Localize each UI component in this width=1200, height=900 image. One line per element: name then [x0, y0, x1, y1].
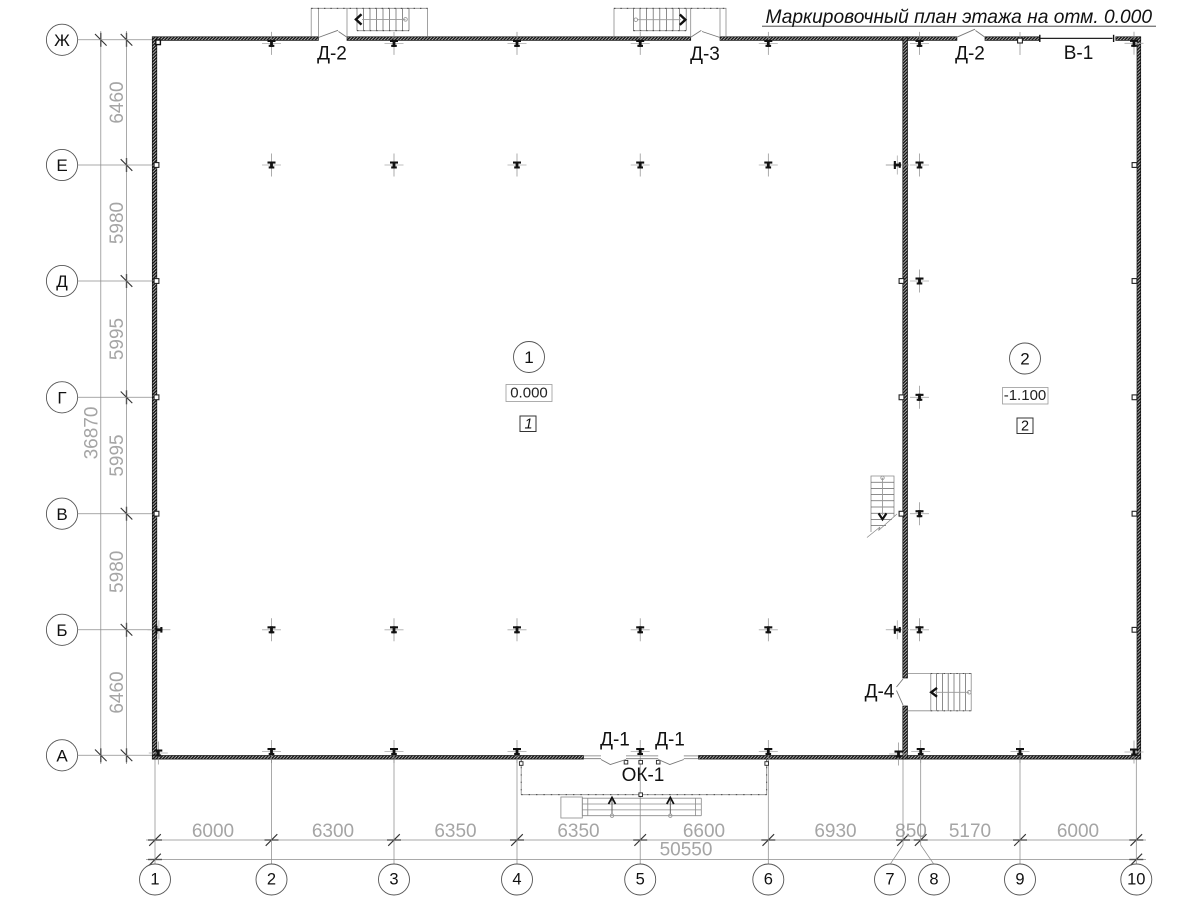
- svg-text:850: 850: [895, 821, 927, 842]
- svg-text:6350: 6350: [434, 821, 476, 842]
- svg-text:5980: 5980: [107, 551, 128, 593]
- svg-text:Д-2: Д-2: [955, 44, 985, 65]
- svg-text:-1.100: -1.100: [1004, 387, 1047, 404]
- svg-text:50550: 50550: [660, 840, 713, 861]
- svg-text:А: А: [56, 747, 68, 766]
- svg-text:1: 1: [524, 348, 533, 367]
- svg-text:1: 1: [524, 417, 532, 433]
- svg-text:5170: 5170: [949, 821, 991, 842]
- svg-text:0.000: 0.000: [510, 385, 548, 402]
- svg-text:2: 2: [1020, 349, 1029, 368]
- svg-text:7: 7: [885, 871, 894, 889]
- svg-text:6300: 6300: [312, 821, 354, 842]
- svg-text:4: 4: [512, 871, 521, 889]
- svg-text:Д: Д: [56, 272, 68, 291]
- svg-text:6000: 6000: [192, 821, 234, 842]
- svg-text:2: 2: [1021, 419, 1029, 435]
- svg-text:8: 8: [929, 871, 938, 889]
- svg-text:В-1: В-1: [1064, 43, 1094, 64]
- svg-text:2: 2: [267, 871, 276, 889]
- svg-text:Д-1: Д-1: [600, 730, 630, 751]
- svg-text:Д-4: Д-4: [865, 682, 895, 703]
- svg-text:6: 6: [764, 871, 773, 889]
- svg-text:В: В: [56, 505, 67, 524]
- svg-text:6460: 6460: [107, 81, 128, 123]
- svg-text:5995: 5995: [107, 318, 128, 360]
- svg-text:Д-1: Д-1: [655, 730, 685, 751]
- svg-text:Г: Г: [57, 389, 66, 408]
- svg-text:1: 1: [150, 871, 159, 889]
- svg-text:Б: Б: [56, 621, 67, 640]
- svg-text:6350: 6350: [557, 821, 599, 842]
- svg-text:Д-2: Д-2: [317, 44, 347, 65]
- svg-text:36870: 36870: [81, 407, 102, 460]
- svg-text:Д-3: Д-3: [690, 44, 720, 65]
- svg-text:5980: 5980: [107, 202, 128, 244]
- svg-text:Е: Е: [56, 156, 67, 175]
- svg-text:6460: 6460: [107, 671, 128, 713]
- svg-text:5: 5: [636, 871, 645, 889]
- svg-text:10: 10: [1127, 871, 1145, 889]
- svg-text:5995: 5995: [107, 434, 128, 476]
- svg-text:6930: 6930: [814, 821, 856, 842]
- svg-text:Маркировочный план этажа на от: Маркировочный план этажа на отм. 0.000: [766, 7, 1153, 28]
- svg-text:9: 9: [1015, 871, 1024, 889]
- svg-text:6000: 6000: [1057, 821, 1099, 842]
- svg-text:Ж: Ж: [54, 31, 70, 50]
- svg-text:ОК-1: ОК-1: [622, 765, 665, 786]
- svg-text:3: 3: [389, 871, 398, 889]
